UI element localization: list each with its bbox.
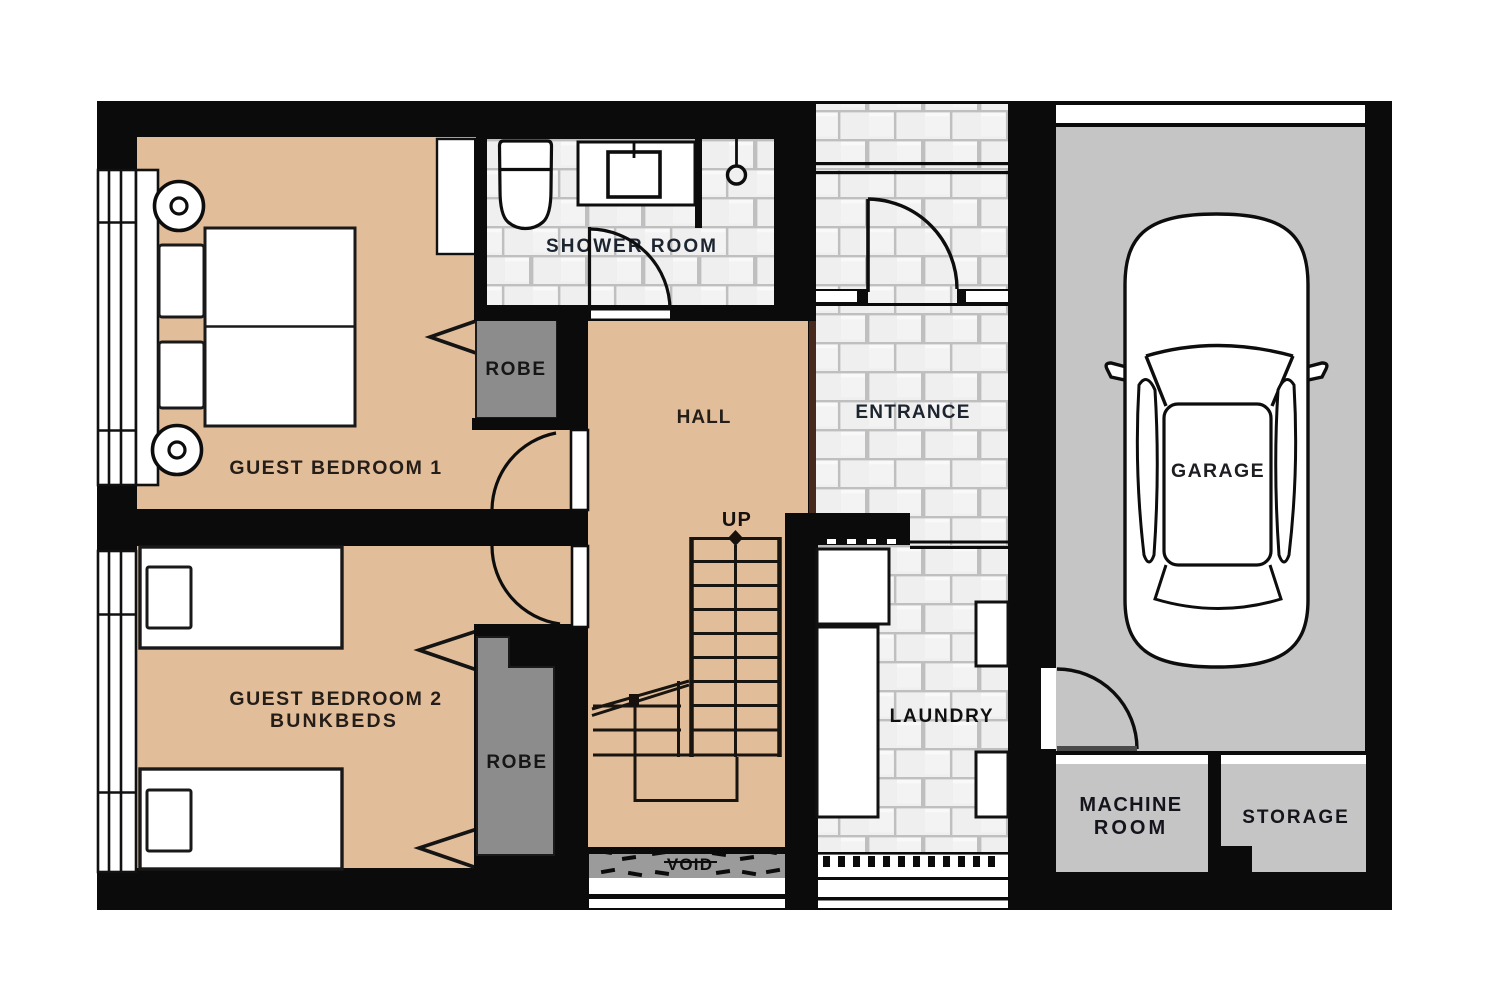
svg-text:SHOWER ROOM: SHOWER ROOM [546, 236, 718, 257]
svg-text:GARAGE: GARAGE [1171, 460, 1265, 482]
svg-text:GUEST BEDROOM 1: GUEST BEDROOM 1 [229, 457, 442, 479]
svg-text:HALL: HALL [677, 407, 732, 428]
svg-text:GUEST BEDROOM 2: GUEST BEDROOM 2 [229, 688, 442, 710]
svg-text:ENTRANCE: ENTRANCE [855, 402, 970, 423]
svg-text:BUNKBEDS: BUNKBEDS [270, 710, 398, 732]
svg-text:ROBE: ROBE [485, 359, 546, 380]
svg-text:ROOM: ROOM [1094, 817, 1168, 839]
svg-text:LAUNDRY: LAUNDRY [890, 706, 995, 727]
svg-text:ROBE: ROBE [486, 752, 547, 773]
svg-text:MACHINE: MACHINE [1079, 794, 1182, 816]
svg-text:VOID: VOID [667, 855, 713, 874]
svg-text:STORAGE: STORAGE [1242, 807, 1350, 828]
svg-text:UP: UP [722, 509, 752, 531]
